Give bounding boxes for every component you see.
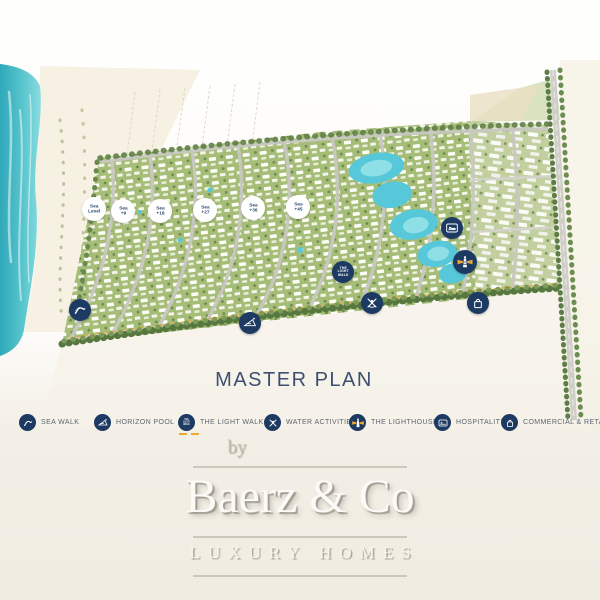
master-plan-page: SeaLevel Sea+9 Sea+18 Sea+27 Sea+36 Sea+… [0,0,600,600]
water-activities-icon [264,414,281,431]
logo-divider-middle [193,536,407,538]
map-hospitality-badge [441,217,463,239]
light-walk-route-swatch [179,433,199,435]
elevation-badge-sea-9: Sea+9 [111,199,135,223]
page-title: MASTER PLAN [0,369,588,392]
legend-item-sea-walk: SEA WALK [19,414,79,431]
map-lighthouse-badge [453,250,477,274]
logo-divider-bottom [193,575,407,577]
elevation-badge-sea-level: SeaLevel [82,197,106,221]
hospitality-icon [444,220,460,236]
sea-walk-icon [19,414,36,431]
elevation-badge-sea-18: Sea+18 [148,199,172,223]
map-light-walk-badge: THE LIGHT WALK [332,261,354,283]
sea-walk-icon [72,302,88,318]
map-commercial-badge [467,292,489,314]
map-horizon-pool-badge [239,312,261,334]
elevation-badge-sea-45: Sea+45 [286,195,310,219]
horizon-pool-icon [242,315,258,331]
elevation-badge-sea-36: Sea+36 [241,196,265,220]
water-activities-icon [364,295,380,311]
map-water-activities-badge [361,292,383,314]
commercial-retail-icon [501,414,518,431]
brand-name: Baerz & Co [120,469,480,524]
legend-item-horizon-pool: HORIZON POOL [94,414,174,431]
legend-item-lighthouse: THE LIGHTHOUSE [349,414,438,431]
light-walk-icon: THE LIGHT WALK [337,267,348,278]
light-walk-icon: THE LIGHT WALK [178,414,195,431]
legend-item-hospitality: HOSPITALITY [434,414,505,431]
elevation-badge-sea-27: Sea+27 [193,198,217,222]
lighthouse-icon [456,253,474,271]
map-sea-walk-badge [69,299,91,321]
logo-by-text: by [177,437,297,459]
legend-item-light-walk: THE LIGHT WALK THE LIGHT WALK [178,414,264,431]
horizon-pool-icon [94,414,111,431]
legend-item-water-activities: WATER ACTIVITIES [264,414,357,431]
legend-item-commercial-retail: COMMERCIAL & RETAIL [501,414,600,431]
lighthouse-icon [349,414,366,431]
hospitality-icon [434,414,451,431]
logo-divider-top [193,466,407,468]
brand-tagline: LUXURY HOMES [120,543,480,563]
commercial-retail-icon [470,295,486,311]
